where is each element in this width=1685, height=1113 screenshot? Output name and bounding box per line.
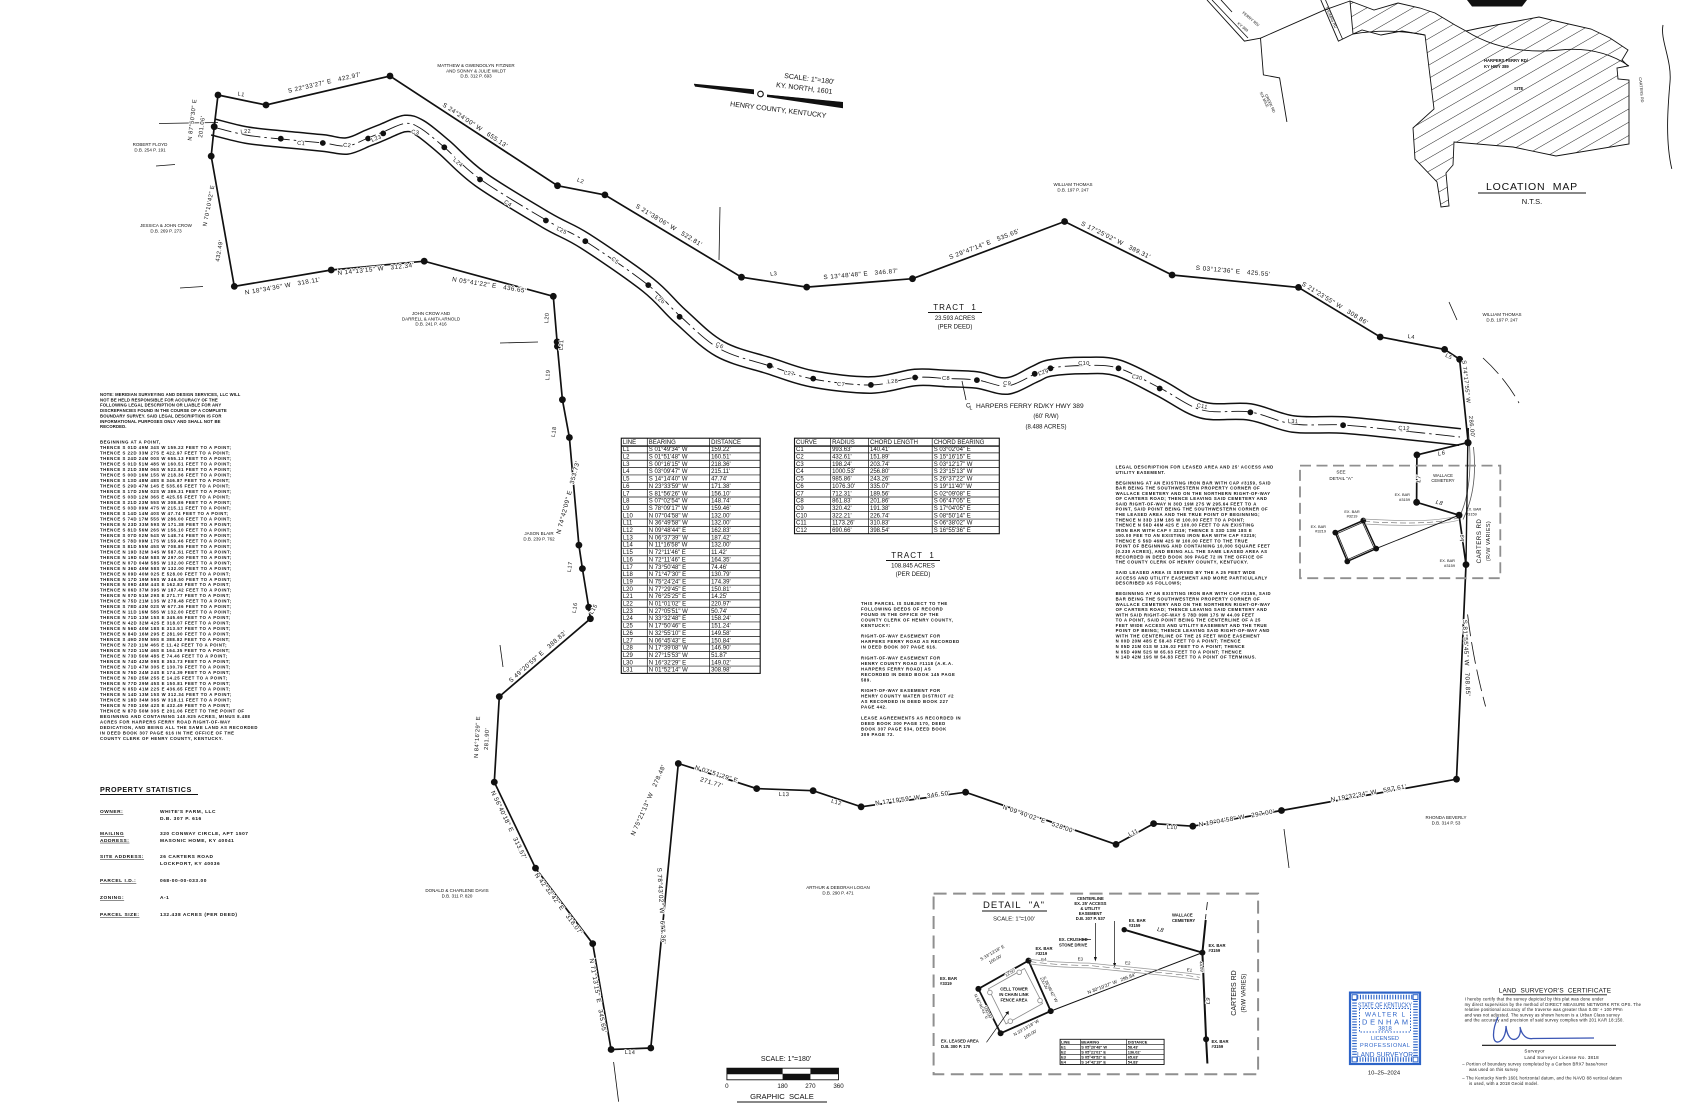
- svg-text:712.31': 712.31': [832, 491, 852, 497]
- svg-text:RECORDED.: RECORDED.: [100, 424, 127, 429]
- svg-text:L4: L4: [623, 469, 630, 475]
- svg-text:relative positional accuracy o: relative positional accuracy of the trav…: [1465, 1007, 1623, 1012]
- svg-text:C10: C10: [1078, 361, 1090, 367]
- svg-text:150.84': 150.84': [711, 638, 731, 644]
- svg-text:#3219: #3219: [1315, 529, 1326, 534]
- svg-text:THENCE S 78D 09M 17S W 159.46: THENCE S 78D 09M 17S W 159.46 FEET TO A …: [100, 538, 231, 543]
- svg-text:TRACT 1: TRACT 1: [933, 303, 977, 312]
- svg-text:L20: L20: [544, 312, 551, 323]
- svg-text:JOHN CROW AND: JOHN CROW AND: [412, 311, 451, 316]
- svg-text:L8: L8: [623, 499, 630, 505]
- svg-text:THENCE N 19D 32M 34S W 587.61: THENCE N 19D 32M 34S W 587.61 FEET TO A …: [100, 549, 232, 554]
- svg-text:398.54': 398.54': [870, 528, 890, 534]
- svg-text:THENCE S 29D 47M 14S E 535.65: THENCE S 29D 47M 14S E 535.65 FEET TO A …: [100, 483, 230, 488]
- svg-text:L16: L16: [623, 557, 634, 563]
- svg-text:THENCE N 75D 21M 13S W 278.48: THENCE N 75D 21M 13S W 278.48 FEET TO A …: [100, 599, 232, 604]
- svg-text:151.24': 151.24': [711, 624, 731, 630]
- svg-text:ADDRESS:: ADDRESS:: [100, 838, 129, 844]
- svg-text:LAND SURVEYOR: LAND SURVEYOR: [1357, 1052, 1413, 1059]
- svg-text:171.38': 171.38': [711, 484, 731, 490]
- svg-text:DISCREPANCIES FOUND IN THE COU: DISCREPANCIES FOUND IN THE COURSE OF A C…: [100, 408, 227, 413]
- svg-text:L1: L1: [237, 91, 245, 98]
- svg-text:PAGE 442.: PAGE 442.: [861, 705, 887, 710]
- svg-text:149.02': 149.02': [711, 660, 731, 666]
- svg-text:RECORDED IN DEED BOOK 309 PAGE: RECORDED IN DEED BOOK 309 PAGE 72 IN THE…: [1116, 554, 1264, 559]
- svg-text:L31: L31: [623, 668, 634, 674]
- svg-text:159.46': 159.46': [711, 506, 731, 512]
- svg-text:146.90': 146.90': [711, 646, 731, 652]
- svg-text:74.46': 74.46': [711, 565, 727, 571]
- svg-text:THENCE N 42D 32M 42S E 318.07: THENCE N 42D 32M 42S E 318.07 FEET TO A …: [100, 621, 231, 626]
- svg-text:THENCE N 71D 13M 15S E 345.65: THENCE N 71D 13M 15S E 345.65 FEET TO A …: [100, 615, 231, 620]
- svg-text:N 36°49'58" W: N 36°49'58" W: [649, 521, 688, 527]
- svg-text:LAND SURVEYOR'S CERTIFICATE: LAND SURVEYOR'S CERTIFICATE: [1499, 988, 1612, 995]
- svg-text:LEGAL DESCRIPTION FOR LEASED A: LEGAL DESCRIPTION FOR LEASED AREA AND 25…: [1116, 465, 1274, 470]
- svg-text:THENCE S 24D 24M 00S W 655.13: THENCE S 24D 24M 00S W 655.13 FEET TO A …: [100, 456, 231, 461]
- svg-text:L1: L1: [623, 447, 630, 453]
- svg-text:C1: C1: [796, 447, 804, 453]
- svg-text:RIGHT-OF-WAY EASEMENT FOR: RIGHT-OF-WAY EASEMENT FOR: [861, 656, 941, 661]
- svg-text:LOCKPORT, KY 40036: LOCKPORT, KY 40036: [160, 861, 220, 867]
- svg-text:L15: L15: [623, 550, 634, 556]
- svg-text:THENCE N 18D 34M 36S W 318.11: THENCE N 18D 34M 36S W 318.11 FEET TO A …: [100, 698, 231, 703]
- svg-text:THENCE S 01D 49M 34S W 159.22: THENCE S 01D 49M 34S W 159.22 FEET TO A …: [100, 445, 231, 450]
- svg-text:L14: L14: [623, 543, 634, 549]
- svg-text:N 75°24'24" E: N 75°24'24" E: [649, 579, 686, 585]
- svg-text:INFORMATIONAL PURPOSES ONLY AN: INFORMATIONAL PURPOSES ONLY AND SHALL NO…: [100, 419, 221, 424]
- svg-text:226.74': 226.74': [870, 513, 890, 519]
- svg-text:THENCE N 07D 04M 58S W 132.00: THENCE N 07D 04M 58S W 132.00 FEET TO A …: [100, 560, 232, 565]
- svg-text:L6: L6: [623, 484, 630, 490]
- svg-text:THENCE N 09D 40M 02S E 528.00: THENCE N 09D 40M 02S E 528.00 FEET TO A …: [100, 571, 231, 576]
- svg-text:#3159: #3159: [1444, 563, 1455, 568]
- svg-text:WILLIAM THOMAS: WILLIAM THOMAS: [1483, 312, 1522, 317]
- svg-text:L3: L3: [770, 271, 778, 278]
- svg-text:160.51': 160.51': [711, 455, 731, 461]
- svg-text:UTILITY EASEMENT.: UTILITY EASEMENT.: [1116, 470, 1166, 475]
- svg-text:DISTANCE: DISTANCE: [711, 440, 741, 446]
- svg-text:S 15°16'15" E: S 15°16'15" E: [934, 455, 971, 461]
- svg-text:HENRY COUNTY WATER DISTRICT #2: HENRY COUNTY WATER DISTRICT #2: [861, 694, 954, 699]
- svg-text:THENCE S 14D 14M 40S W 47.74 F: THENCE S 14D 14M 40S W 47.74 FEET TO A P…: [100, 511, 229, 516]
- svg-text:STATE OF KENTUCKY: STATE OF KENTUCKY: [1358, 1000, 1412, 1009]
- svg-text:CHORD BEARING: CHORD BEARING: [934, 440, 985, 446]
- svg-text:C7: C7: [796, 491, 804, 497]
- svg-text:THENCE N 23D 33M 59S W 171.38: THENCE N 23D 33M 59S W 171.38 FEET TO A …: [100, 522, 232, 527]
- svg-text:S 07°02'54" W: S 07°02'54" W: [649, 499, 688, 505]
- svg-text:THENCE N 05D 41M 22S E 436.65: THENCE N 05D 41M 22S E 436.65 FEET TO A …: [100, 687, 231, 692]
- svg-text:#3159: #3159: [1212, 1044, 1224, 1049]
- svg-text:THENCE N 71D 47M 30S E 130.79: THENCE N 71D 47M 30S E 130.79 FEET TO A …: [100, 665, 231, 670]
- svg-text:159.22': 159.22': [711, 447, 731, 453]
- svg-text:3818: 3818: [1378, 1026, 1392, 1033]
- svg-text:THENCE N 72D 11M 46S E 164.35: THENCE N 72D 11M 46S E 164.35 FEET TO A …: [100, 648, 230, 653]
- svg-text:C6: C6: [796, 484, 804, 490]
- svg-text:N 72°11'46" E: N 72°11'46" E: [649, 557, 686, 563]
- svg-text:203.74': 203.74': [870, 462, 890, 468]
- svg-text:C12: C12: [796, 528, 808, 534]
- svg-text:THENCE N 19D 04M 58S W 297.00: THENCE N 19D 04M 58S W 297.00 FEET TO A …: [100, 555, 232, 560]
- svg-text:C8: C8: [942, 376, 950, 382]
- svg-text:HARPERS FERRY ROAD AS RECORDED: HARPERS FERRY ROAD AS RECORDED: [861, 639, 960, 644]
- svg-text:E4: E4: [1061, 1059, 1067, 1064]
- svg-text:150.81': 150.81': [711, 587, 731, 593]
- svg-text:N 00D 20M 48S E 58.43 FEET TO: N 00D 20M 48S E 58.43 FEET TO A POINT; T…: [1116, 639, 1241, 644]
- svg-text:26 CARTERS ROAD: 26 CARTERS ROAD: [160, 854, 214, 860]
- svg-text:322.21': 322.21': [832, 513, 852, 519]
- svg-text:S 26°37'22" W: S 26°37'22" W: [934, 477, 973, 483]
- svg-text:164.35': 164.35': [711, 557, 731, 563]
- svg-text:S 01°49'34" W: S 01°49'34" W: [649, 447, 688, 453]
- svg-text:SITE ADDRESS:: SITE ADDRESS:: [100, 854, 144, 860]
- svg-text:THENCE N 72D 11M 46S E 11.42 F: THENCE N 72D 11M 46S E 11.42 FEET TO A P…: [100, 643, 227, 648]
- svg-text:L26: L26: [623, 631, 634, 637]
- svg-text:IRON BAR WITH CAP # 3219; THEN: IRON BAR WITH CAP # 3219; THENCE S 33D 1…: [1116, 528, 1253, 533]
- svg-text:L19: L19: [623, 579, 634, 585]
- svg-text:132.00': 132.00': [711, 543, 731, 549]
- svg-text:#3159: #3159: [1129, 923, 1141, 928]
- svg-text:S 23°15'13" W: S 23°15'13" W: [934, 469, 973, 475]
- svg-text:THENCE N 09D 48M 44S E 162.83: THENCE N 09D 48M 44S E 162.83 FEET TO A …: [100, 582, 231, 587]
- svg-text:CELL TOWER: CELL TOWER: [1000, 987, 1028, 992]
- svg-text:N 05D 21M 01S W 136.02 FEET TO: N 05D 21M 01S W 136.02 FEET TO A POINT; …: [1116, 644, 1245, 649]
- svg-text:S 01°51'48" W: S 01°51'48" W: [649, 455, 688, 461]
- svg-text:PARCEL I.D.:: PARCEL I.D.:: [100, 878, 136, 884]
- svg-text:DESCRIBED AS FOLLOWS;: DESCRIBED AS FOLLOWS;: [1116, 581, 1182, 586]
- svg-text:THENCE N 33D 13M 18S W 100.00: THENCE N 33D 13M 18S W 100.00 FEET TO A …: [1116, 517, 1245, 522]
- svg-text:THENCE N 11D 16M 58S W 132.00: THENCE N 11D 16M 58S W 132.00 FEET TO A …: [100, 610, 231, 615]
- svg-text:N 05D 49M 52S W 65.63 FEET TO: N 05D 49M 52S W 65.63 FEET TO A POINT; T…: [1116, 649, 1243, 654]
- svg-text:CHORD LENGTH: CHORD LENGTH: [870, 440, 918, 446]
- svg-text:DONALD & CHARLENE DAVIS: DONALD & CHARLENE DAVIS: [425, 888, 488, 893]
- svg-text:S 03°02'04" E: S 03°02'04" E: [934, 447, 971, 453]
- svg-text:THENCE S 49D 20M 59S E 388.82: THENCE S 49D 20M 59S E 388.82 FEET TO A …: [100, 637, 230, 642]
- svg-text:L27: L27: [623, 638, 634, 644]
- svg-text:N 17°50'46" E: N 17°50'46" E: [649, 624, 686, 630]
- svg-text:D.B. 312 P. 693: D.B. 312 P. 693: [460, 74, 492, 79]
- svg-text:FEET WIDE ACCESS AND UTILITY E: FEET WIDE ACCESS AND UTILITY EASEMENT AN…: [1116, 623, 1268, 628]
- svg-text:D.B. 300 P. 170: D.B. 300 P. 170: [941, 1044, 971, 1049]
- svg-text:148.74': 148.74': [711, 499, 731, 505]
- svg-text:158.24': 158.24': [711, 616, 731, 622]
- svg-text:JASON BLAIR: JASON BLAIR: [524, 531, 554, 536]
- svg-text:THENCE S 21D 38M 06S W 522.81: THENCE S 21D 38M 06S W 522.81 FEET TO A …: [100, 467, 231, 472]
- svg-text:132.00': 132.00': [711, 521, 731, 527]
- svg-text:HARPERS FERRY ROAD) AS: HARPERS FERRY ROAD) AS: [861, 666, 931, 671]
- svg-text:THENCE S 03D 12M 36S E 425.55: THENCE S 03D 12M 36S E 425.55 FEET TO A …: [100, 494, 230, 499]
- svg-text:189.56': 189.56': [870, 491, 890, 497]
- svg-text:243.26': 243.26': [870, 477, 890, 483]
- svg-text:my direct supervision by the m: my direct supervision by the method of D…: [1465, 1002, 1642, 1007]
- svg-text:#3219: #3219: [1036, 951, 1048, 956]
- svg-text:D.B. 197 P. 247: D.B. 197 P. 247: [1057, 187, 1089, 192]
- svg-text:LINE: LINE: [623, 440, 636, 446]
- svg-text:THENCE N 74D 42M 09S E 353.73: THENCE N 74D 42M 09S E 353.73 FEET TO A …: [100, 659, 231, 664]
- svg-text:308.98': 308.98': [711, 668, 731, 674]
- svg-text:N 76°25'25" E: N 76°25'25" E: [649, 594, 686, 600]
- svg-text:C11: C11: [796, 521, 807, 527]
- svg-text:L11: L11: [623, 521, 633, 527]
- svg-text:23.593 ACRES: 23.593 ACRES: [935, 316, 975, 322]
- svg-text:S 17°04'05" E: S 17°04'05" E: [934, 506, 971, 512]
- svg-text:was used on this survey: was used on this survey: [1469, 1067, 1519, 1072]
- svg-text:BEGINNING AND CONTAINING 140.9: BEGINNING AND CONTAINING 140.925 ACRES, …: [100, 714, 251, 719]
- svg-text:S 14°14'40" W: S 14°14'40" W: [649, 477, 688, 483]
- svg-text:THIS PARCEL IS SUBJECT TO THE: THIS PARCEL IS SUBJECT TO THE: [861, 601, 948, 606]
- svg-text:N 16°32'29" E: N 16°32'29" E: [649, 660, 686, 666]
- svg-text:L21: L21: [559, 339, 566, 350]
- svg-text:JESSICA & JOHN CROW: JESSICA & JOHN CROW: [140, 223, 193, 228]
- svg-text:S 06°47'05" E: S 06°47'05" E: [934, 499, 971, 505]
- svg-text:ROBERT FLOYD: ROBERT FLOYD: [133, 142, 169, 147]
- svg-text:NOTE: MERIDIAN SURVEYING AND D: NOTE: MERIDIAN SURVEYING AND DESIGN SERV…: [100, 392, 241, 397]
- svg-text:PROFESSIONAL: PROFESSIONAL: [1360, 1043, 1410, 1049]
- svg-text:993.63': 993.63': [832, 447, 852, 453]
- svg-text:L31: L31: [1288, 419, 1299, 426]
- svg-text:(0.230 ACRES), AND BEING ALL T: (0.230 ACRES), AND BEING ALL THE SAME LE…: [1116, 549, 1268, 554]
- svg-text:E2: E2: [1125, 960, 1131, 965]
- svg-text:BOOK 307 PAGE 534, DEED BOOK: BOOK 307 PAGE 534, DEED BOOK: [861, 726, 947, 731]
- svg-text:174.39': 174.39': [711, 579, 731, 585]
- svg-text:– Portion of boundary survey: – Portion of boundary survey completed b…: [1462, 1062, 1608, 1067]
- svg-text:320 CONWAY CIRCLE, APT 1507: 320 CONWAY CIRCLE, APT 1507: [160, 831, 249, 837]
- svg-text:589.: 589.: [861, 677, 871, 682]
- svg-text:Land Surveyor License No. 3818: Land Surveyor License No. 3818: [1524, 1055, 1599, 1060]
- svg-text:OF CARTERS ROAD; THENCE LEAVIN: OF CARTERS ROAD; THENCE LEAVING SAID CEM…: [1116, 607, 1268, 612]
- svg-text:162.83': 162.83': [711, 528, 731, 534]
- svg-text:S 03°12'17" W: S 03°12'17" W: [934, 462, 973, 468]
- svg-text:187.42': 187.42': [711, 535, 731, 541]
- svg-text:L24: L24: [623, 616, 634, 622]
- svg-text:S 19°11'40" W: S 19°11'40" W: [934, 484, 973, 490]
- svg-text:C8: C8: [796, 499, 804, 505]
- svg-text:THENCE N 56D 40M 18S E 313.57: THENCE N 56D 40M 18S E 313.57 FEET TO A …: [100, 626, 231, 631]
- svg-text:L17: L17: [623, 565, 634, 571]
- svg-text:MATTHEW & GWENDOLYN FITZNER: MATTHEW & GWENDOLYN FITZNER: [437, 63, 515, 68]
- svg-text:L28: L28: [623, 646, 634, 652]
- svg-text:N 06°45'43" E: N 06°45'43" E: [649, 638, 686, 644]
- svg-text:COUNTY CLERK OF HENRY COUNTY,: COUNTY CLERK OF HENRY COUNTY, KENTUCKY.: [100, 736, 223, 741]
- svg-text:L9: L9: [623, 506, 630, 512]
- svg-text:POINT OF BEING; THENCE LEAVING: POINT OF BEING; THENCE LEAVING SAID RIGH…: [1116, 628, 1270, 633]
- svg-text:#3319: #3319: [940, 981, 952, 986]
- svg-text:N 06°37'39" W: N 06°37'39" W: [649, 535, 688, 541]
- svg-text:SAID RIGHT-OF-WAY N 30D 19M 27: SAID RIGHT-OF-WAY N 30D 19M 27S W 295.64…: [1116, 501, 1257, 506]
- svg-text:WILLIAM THOMAS: WILLIAM THOMAS: [1054, 182, 1093, 187]
- svg-text:ZONING:: ZONING:: [100, 895, 124, 901]
- svg-text:L22: L22: [623, 602, 634, 608]
- svg-text:THENCE N 07D 51M 29S E 271.77: THENCE N 07D 51M 29S E 271.77 FEET TO A …: [100, 593, 231, 598]
- svg-text:N 17°39'08" W: N 17°39'08" W: [649, 646, 688, 652]
- svg-text:HARPERS FERRY RD/: HARPERS FERRY RD/: [1484, 58, 1529, 63]
- svg-text:C7: C7: [837, 382, 845, 389]
- svg-text:C10: C10: [796, 513, 808, 519]
- svg-text:THENCE N 06D 37M 39S W 187.42: THENCE N 06D 37M 39S W 187.42 FEET TO A …: [100, 588, 232, 593]
- svg-text:140.41': 140.41': [870, 447, 890, 453]
- svg-text:L2: L2: [623, 455, 630, 461]
- svg-text:L9: L9: [1206, 997, 1212, 1005]
- svg-text:AS RECORDED IN DEED BOOK 227: AS RECORDED IN DEED BOOK 227: [861, 699, 949, 704]
- svg-text:D.B. 311 P. 820: D.B. 311 P. 820: [442, 893, 473, 898]
- svg-text:51.87': 51.87': [711, 653, 727, 659]
- svg-text:D.B. 197 P. 247: D.B. 197 P. 247: [1486, 317, 1518, 322]
- svg-text:DEDICATION, AND BEING ALL THE: DEDICATION, AND BEING ALL THE SAME LAND …: [100, 725, 258, 730]
- svg-text:TO A POINT, SAID POINT BEING T: TO A POINT, SAID POINT BEING THE CENTERL…: [1116, 618, 1261, 623]
- svg-text:#3159: #3159: [1399, 497, 1410, 502]
- svg-text:THENCE S 74D 17M 55S W 286.00: THENCE S 74D 17M 55S W 286.00 FEET TO A …: [100, 516, 231, 521]
- svg-text:FOUND IN THE OFFICE OF THE: FOUND IN THE OFFICE OF THE: [861, 612, 939, 617]
- svg-text:47.74': 47.74': [711, 477, 727, 483]
- svg-text:THENCE N 36D 49M 58S W 132.00: THENCE N 36D 49M 58S W 132.00 FEET TO A …: [100, 566, 232, 571]
- svg-text:THENCE N 14D 13M 15S W 312.34: THENCE N 14D 13M 15S W 312.34 FEET TO A …: [100, 692, 232, 697]
- svg-text:L4: L4: [1407, 334, 1415, 341]
- svg-text:BEGINNING AT AN EXISTING IRON: BEGINNING AT AN EXISTING IRON BAR WITH C…: [1116, 591, 1271, 596]
- svg-text:RADIUS: RADIUS: [832, 440, 855, 446]
- svg-text:(PER DEED): (PER DEED): [938, 325, 973, 331]
- svg-text:215.11': 215.11': [711, 469, 730, 475]
- svg-text:S 78°09'17" W: S 78°09'17" W: [649, 506, 688, 512]
- svg-text:D.B. 269 P. 273: D.B. 269 P. 273: [150, 228, 182, 233]
- svg-text:#3159: #3159: [1209, 948, 1221, 953]
- svg-text:is used, with a 2018 Geoid mod: is used, with a 2018 Geoid model.: [1469, 1081, 1539, 1086]
- svg-text:BEGINNING AT AN EXISTING IRON: BEGINNING AT AN EXISTING IRON BAR WITH C…: [1116, 480, 1271, 485]
- svg-text:L28: L28: [887, 379, 898, 386]
- svg-text:THENCE S 00D 16M 15S W 218.36: THENCE S 00D 16M 15S W 218.36 FEET TO A …: [100, 472, 231, 477]
- svg-text:L30: L30: [623, 660, 634, 666]
- svg-text:1076.30': 1076.30': [832, 484, 855, 490]
- svg-text:309 PAGE 72.: 309 PAGE 72.: [861, 732, 895, 737]
- svg-text:THENCE N 87D 50M 30S E 201.06: THENCE N 87D 50M 30S E 201.06 FEET TO TH…: [100, 709, 245, 714]
- svg-text:CEMETERY: CEMETERY: [1431, 478, 1454, 483]
- svg-text:BAR BEING THE SOUTHWESTERN PRO: BAR BEING THE SOUTHWESTERN PROPERTY CORN…: [1116, 486, 1261, 491]
- svg-text:180: 180: [777, 1083, 788, 1090]
- svg-text:LEASE AGREEMENTS AS RECORDED I: LEASE AGREEMENTS AS RECORDED IN: [861, 715, 961, 720]
- svg-text:NOT BE HELD RESPONSIBLE FOR AC: NOT BE HELD RESPONSIBLE FOR ACCURACY OF …: [100, 397, 218, 402]
- svg-text:SCALE: 1"=100': SCALE: 1"=100': [993, 917, 1035, 923]
- svg-text:EX. LEASED AREA: EX. LEASED AREA: [941, 1039, 979, 1044]
- svg-text:270: 270: [805, 1083, 816, 1090]
- svg-text:MASONIC HOME, KY 40041: MASONIC HOME, KY 40041: [160, 838, 234, 844]
- svg-text:I hereby certify that the surv: I hereby certify that the survey depicte…: [1465, 997, 1604, 1002]
- svg-text:PARCEL SIZE:: PARCEL SIZE:: [100, 912, 139, 918]
- svg-text:335.07': 335.07': [870, 484, 890, 490]
- svg-text:AND SONNY & JULIE WILDT: AND SONNY & JULIE WILDT: [446, 68, 506, 73]
- svg-text:DETAIL "A": DETAIL "A": [983, 900, 1045, 911]
- svg-text:C9: C9: [1003, 381, 1012, 388]
- svg-text:S 08°50'14" E: S 08°50'14" E: [934, 513, 971, 519]
- svg-text:C5: C5: [796, 477, 804, 483]
- svg-text:100.00 FEE TO AN EXISTING IRON: 100.00 FEE TO AN EXISTING IRON BAR WITH …: [1116, 533, 1257, 538]
- svg-text:CARTERS RD: CARTERS RD: [1476, 519, 1483, 564]
- svg-text:108.845 ACRES: 108.845 ACRES: [891, 564, 935, 570]
- svg-text:14.25': 14.25': [711, 594, 727, 600]
- svg-text:BOUNDARY SURVEY. SAID LEGAL DE: BOUNDARY SURVEY. SAID LEGAL DESCRIPTION …: [100, 413, 222, 418]
- svg-text:THENCE S 21D 23M 55S W 308.86: THENCE S 21D 23M 55S W 308.86 FEET TO A …: [100, 500, 231, 505]
- svg-text:281.90': 281.90': [484, 728, 491, 750]
- svg-text:SCALE: 1"=180': SCALE: 1"=180': [761, 1056, 811, 1063]
- svg-text:L21: L21: [623, 594, 634, 600]
- svg-text:DARRELL & ANITA ARNOLD: DARRELL & ANITA ARNOLD: [402, 316, 461, 321]
- svg-text:N 01°01'02" E: N 01°01'02" E: [649, 602, 686, 608]
- svg-text:N 01°52'14" W: N 01°52'14" W: [649, 668, 688, 674]
- svg-text:OF CARTERS ROAD; THENCE LEAVIN: OF CARTERS ROAD; THENCE LEAVING SAID CEM…: [1116, 496, 1268, 501]
- svg-text:156.10': 156.10': [711, 491, 731, 497]
- svg-text:S 02°09'08" E: S 02°09'08" E: [934, 491, 971, 497]
- svg-text:S 16°55'36" E: S 16°55'36" E: [934, 528, 971, 534]
- svg-text:L10: L10: [1167, 825, 1178, 832]
- svg-text:L13: L13: [779, 792, 790, 798]
- svg-text:N 09°48'44" E: N 09°48'44" E: [649, 528, 686, 534]
- svg-text:N 77°29'45" E: N 77°29'45" E: [649, 587, 686, 593]
- svg-text:THENCE N 17D 19M 59S W 346.50: THENCE N 17D 19M 59S W 346.50 FEET TO A …: [100, 577, 232, 582]
- svg-text:BAR BEING THE SOUTHWESTERN PRO: BAR BEING THE SOUTHWESTERN PROPERTY CORN…: [1116, 597, 1261, 602]
- svg-text:L3: L3: [623, 462, 630, 468]
- svg-text:985.86': 985.86': [832, 477, 852, 483]
- svg-text:N 14D 42M 19S W 54.83 FEET TO: N 14D 42M 19S W 54.83 FEET TO A POINT OF…: [1116, 655, 1257, 660]
- svg-text:ACRES FOR HARPERS FERRY ROAD R: ACRES FOR HARPERS FERRY ROAD RIGHT-OF-WA…: [100, 719, 231, 724]
- svg-text:RIGHT-OF-WAY EASEMENT FOR: RIGHT-OF-WAY EASEMENT FOR: [861, 634, 941, 639]
- svg-text:COUNTY CLERK OF HENRY COUNTY,: COUNTY CLERK OF HENRY COUNTY,: [861, 617, 953, 622]
- svg-text:E3: E3: [1078, 956, 1084, 961]
- svg-text:690.66': 690.66': [832, 528, 852, 534]
- svg-text:THENCE S 81D 55M 45S W 708.85: THENCE S 81D 55M 45S W 708.85 FEET TO A …: [100, 544, 231, 549]
- svg-text:C1: C1: [297, 141, 306, 148]
- svg-text:D.B. 290 P. 471: D.B. 290 P. 471: [822, 890, 854, 895]
- svg-text:SEE: SEE: [1336, 470, 1345, 475]
- svg-text:BEARING: BEARING: [649, 440, 676, 446]
- svg-text:N 27°05'51" W: N 27°05'51" W: [649, 609, 688, 615]
- svg-text:256.80': 256.80': [870, 469, 890, 475]
- svg-text:#3219: #3219: [1347, 514, 1358, 519]
- svg-text:OWNER:: OWNER:: [100, 809, 123, 815]
- svg-text:L22: L22: [240, 129, 251, 136]
- svg-text:D.B. 307 P. 537: D.B. 307 P. 537: [1076, 916, 1106, 921]
- svg-text:S 81°56'26" W: S 81°56'26" W: [649, 491, 688, 497]
- svg-text:861.83': 861.83': [832, 499, 852, 505]
- svg-text:(R/W VARIES): (R/W VARIES): [1486, 521, 1492, 561]
- svg-text:KENTUCKY:: KENTUCKY:: [861, 623, 891, 628]
- svg-text:SAID LEASED AREA IS SERVED BY: SAID LEASED AREA IS SERVED BY THE A 25 F…: [1116, 570, 1256, 575]
- svg-text:L: L: [970, 406, 973, 412]
- svg-text:THENCE S 78D 43M 02S W 677.36: THENCE S 78D 43M 02S W 677.36 FEET TO A …: [100, 604, 231, 609]
- svg-text:THE COUNTY CLERK OF HENRY COUN: THE COUNTY CLERK OF HENRY COUNTY, KENTUC…: [1116, 560, 1249, 565]
- svg-text:THENCE S 07D 02M 54S W 148.74: THENCE S 07D 02M 54S W 148.74 FEET TO A …: [100, 533, 231, 538]
- svg-text:191.38': 191.38': [870, 506, 890, 512]
- svg-text:STONE DRIVE: STONE DRIVE: [1059, 943, 1088, 948]
- svg-text:C12: C12: [1398, 426, 1410, 433]
- svg-text:FENCE AREA: FENCE AREA: [1000, 998, 1027, 1003]
- svg-text:S 06°38'02" W: S 06°38'02" W: [934, 521, 973, 527]
- svg-text:C3: C3: [796, 462, 804, 468]
- svg-text:(R/W VARIES): (R/W VARIES): [1242, 974, 1248, 1013]
- svg-text:L10: L10: [623, 513, 634, 519]
- svg-text:C9: C9: [796, 506, 804, 512]
- svg-text:THENCE N 84D 16M 29S E 281.90: THENCE N 84D 16M 29S E 281.90 FEET TO A …: [100, 632, 231, 637]
- svg-text:HENRY COUNTY ROAD #1118 (A.K.A: HENRY COUNTY ROAD #1118 (A.K.A.: [861, 661, 953, 666]
- svg-text:N 33°32'48" E: N 33°32'48" E: [649, 616, 686, 622]
- svg-text:THENCE S 17D 25M 02S W 389.31: THENCE S 17D 25M 02S W 389.31 FEET TO A …: [100, 489, 231, 494]
- svg-text:THENCE S 81D 56M 26S W 156.10: THENCE S 81D 56M 26S W 156.10 FEET TO A …: [100, 527, 231, 532]
- svg-text:POINT, SAID POINT BEING THE SO: POINT, SAID POINT BEING THE SOUTHWESTERN…: [1116, 507, 1269, 512]
- svg-text:N 71°47'30" E: N 71°47'30" E: [649, 572, 686, 578]
- svg-text:RECORDED IN DEED BOOK 145 PAGE: RECORDED IN DEED BOOK 145 PAGE: [861, 672, 955, 677]
- svg-text:WHITE'S FARM, LLC: WHITE'S FARM, LLC: [160, 809, 216, 815]
- svg-text:10–25–2024: 10–25–2024: [1368, 1071, 1401, 1077]
- svg-text:L29: L29: [623, 653, 634, 659]
- svg-text:(8.488 ACRES): (8.488 ACRES): [1025, 425, 1066, 431]
- svg-text:BEGINNING AT A POINT,: BEGINNING AT A POINT,: [100, 440, 161, 445]
- svg-text:THENCE S 01D 51M 48S W 160.51: THENCE S 01D 51M 48S W 160.51 FEET TO A …: [100, 461, 231, 466]
